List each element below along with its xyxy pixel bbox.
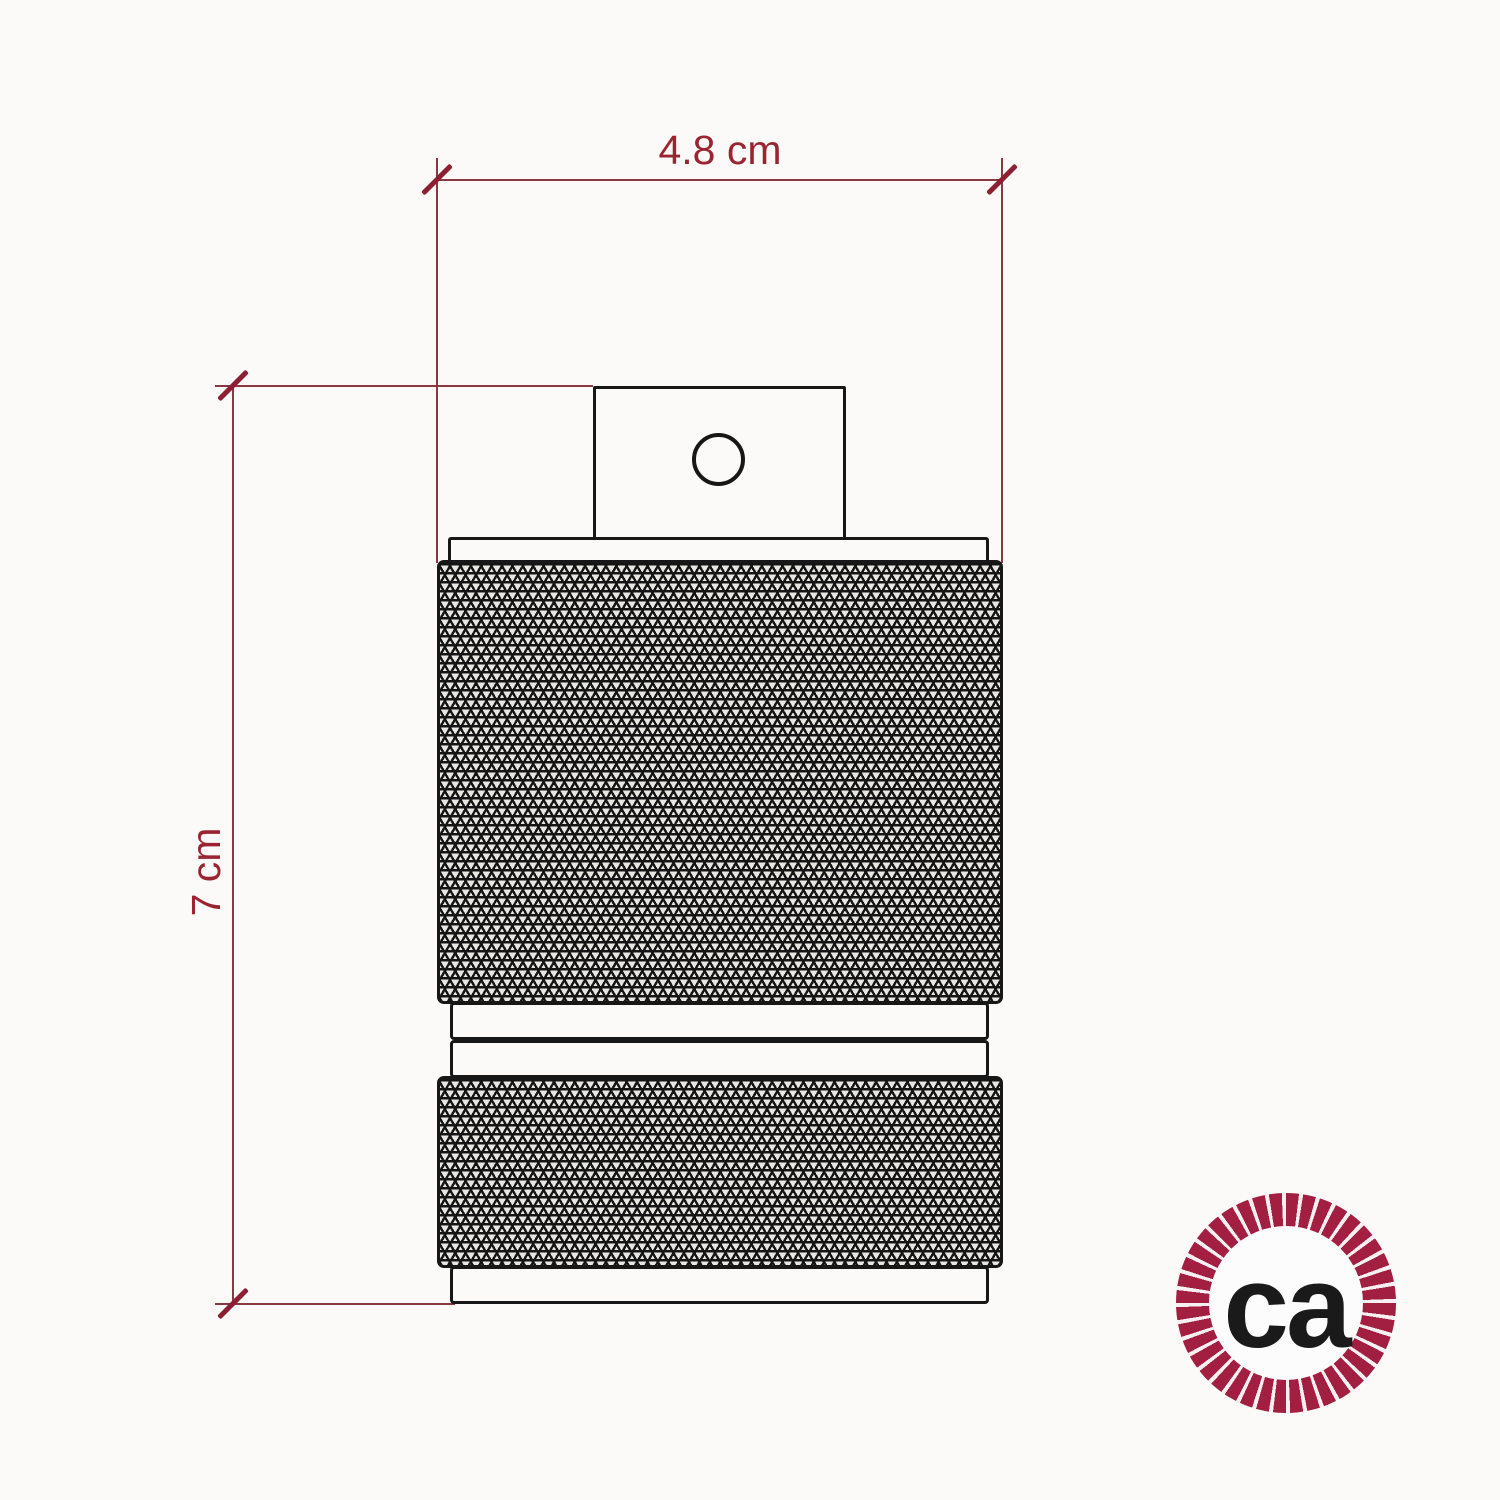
height-extension-line-top — [215, 385, 593, 387]
smooth-band-upper — [450, 1002, 989, 1040]
creative-cables-logo: ca — [1176, 1193, 1396, 1413]
knurled-ring-lower — [437, 1076, 1003, 1268]
width-extension-line-left — [436, 158, 438, 563]
width-extension-line-right — [1001, 158, 1003, 563]
height-dimension-label: 7 cm — [184, 828, 228, 917]
height-dimension-line — [232, 386, 234, 1304]
logo-inner-circle: ca — [1209, 1226, 1363, 1380]
bottom-cap — [450, 1266, 989, 1304]
width-dimension-line — [437, 179, 1003, 181]
smooth-band-lower — [450, 1040, 989, 1078]
height-extension-line-bottom — [215, 1303, 455, 1305]
cable-hole-icon — [692, 433, 745, 486]
logo-text: ca — [1223, 1239, 1348, 1375]
dimension-drawing-canvas: 4.8 cm 7 cm ca — [0, 0, 1500, 1500]
knurled-body-upper — [437, 560, 1003, 1004]
width-dimension-label: 4.8 cm — [437, 128, 1003, 172]
